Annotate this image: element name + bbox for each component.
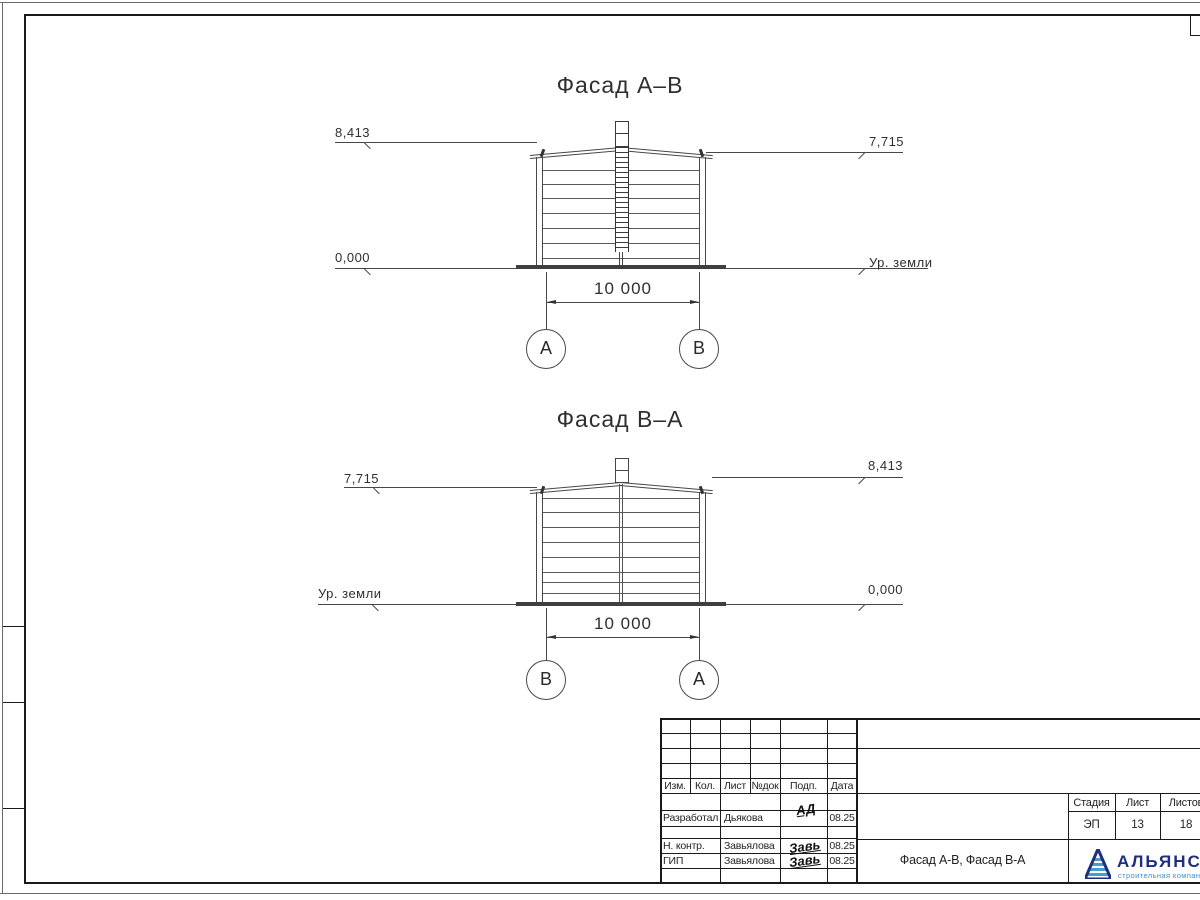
table-line — [660, 748, 857, 749]
table-line — [857, 839, 1200, 840]
table-line — [660, 778, 857, 779]
col-header-ndok: №док — [750, 781, 780, 793]
table-line — [660, 810, 857, 811]
table-line — [660, 853, 857, 854]
table-line — [660, 733, 857, 734]
sheet-header: Лист — [1115, 797, 1160, 809]
doc-title: Фасад А-В, Фасад В-А — [860, 854, 1065, 868]
row-date: 08.25 — [827, 813, 857, 825]
table-line — [660, 793, 857, 794]
table-line — [660, 826, 857, 827]
stage-value: ЭП — [1068, 819, 1115, 832]
table-line — [857, 748, 1200, 749]
title-block: Изм. Кол. Лист №док Подп. Дата Разработа… — [0, 0, 1200, 900]
row-date: 08.25 — [827, 841, 857, 853]
col-header-data: Дата — [827, 781, 857, 793]
table-line — [857, 793, 1200, 794]
row-name: Завьялова — [724, 856, 775, 868]
table-line — [660, 868, 857, 869]
col-header-list: Лист — [720, 781, 750, 793]
logo-tagline: строительная компания — [1118, 871, 1200, 880]
table-line — [780, 718, 781, 884]
row-signature: АД — [795, 801, 816, 819]
table-line — [1068, 811, 1200, 812]
logo-company-name: АЛЬЯНС — [1117, 852, 1200, 872]
row-name: Завьялова — [724, 841, 775, 853]
col-header-kol: Кол. — [690, 781, 720, 793]
table-line — [720, 718, 721, 884]
sheets-value: 18 — [1160, 819, 1200, 832]
sheet-value: 13 — [1115, 819, 1160, 832]
row-date: 08.25 — [827, 856, 857, 868]
sheets-header: Листов — [1160, 797, 1200, 809]
stage-header: Стадия — [1068, 797, 1115, 809]
col-header-izm: Изм. — [660, 781, 690, 793]
company-logo: АЛЬЯНС строительная компания — [1085, 849, 1200, 881]
drawing-sheet: Фасад А–В 8,413 0,000 7,715 Ур. земли — [0, 0, 1200, 900]
table-line — [660, 838, 857, 839]
row-role: Н. контр. — [663, 841, 705, 853]
row-name: Дьякова — [724, 813, 763, 825]
row-role: Разработал — [663, 813, 718, 825]
pyramid-logo-icon — [1085, 849, 1111, 884]
col-header-podp: Подп. — [780, 781, 827, 793]
table-line — [660, 763, 857, 764]
row-role: ГИП — [663, 856, 683, 868]
